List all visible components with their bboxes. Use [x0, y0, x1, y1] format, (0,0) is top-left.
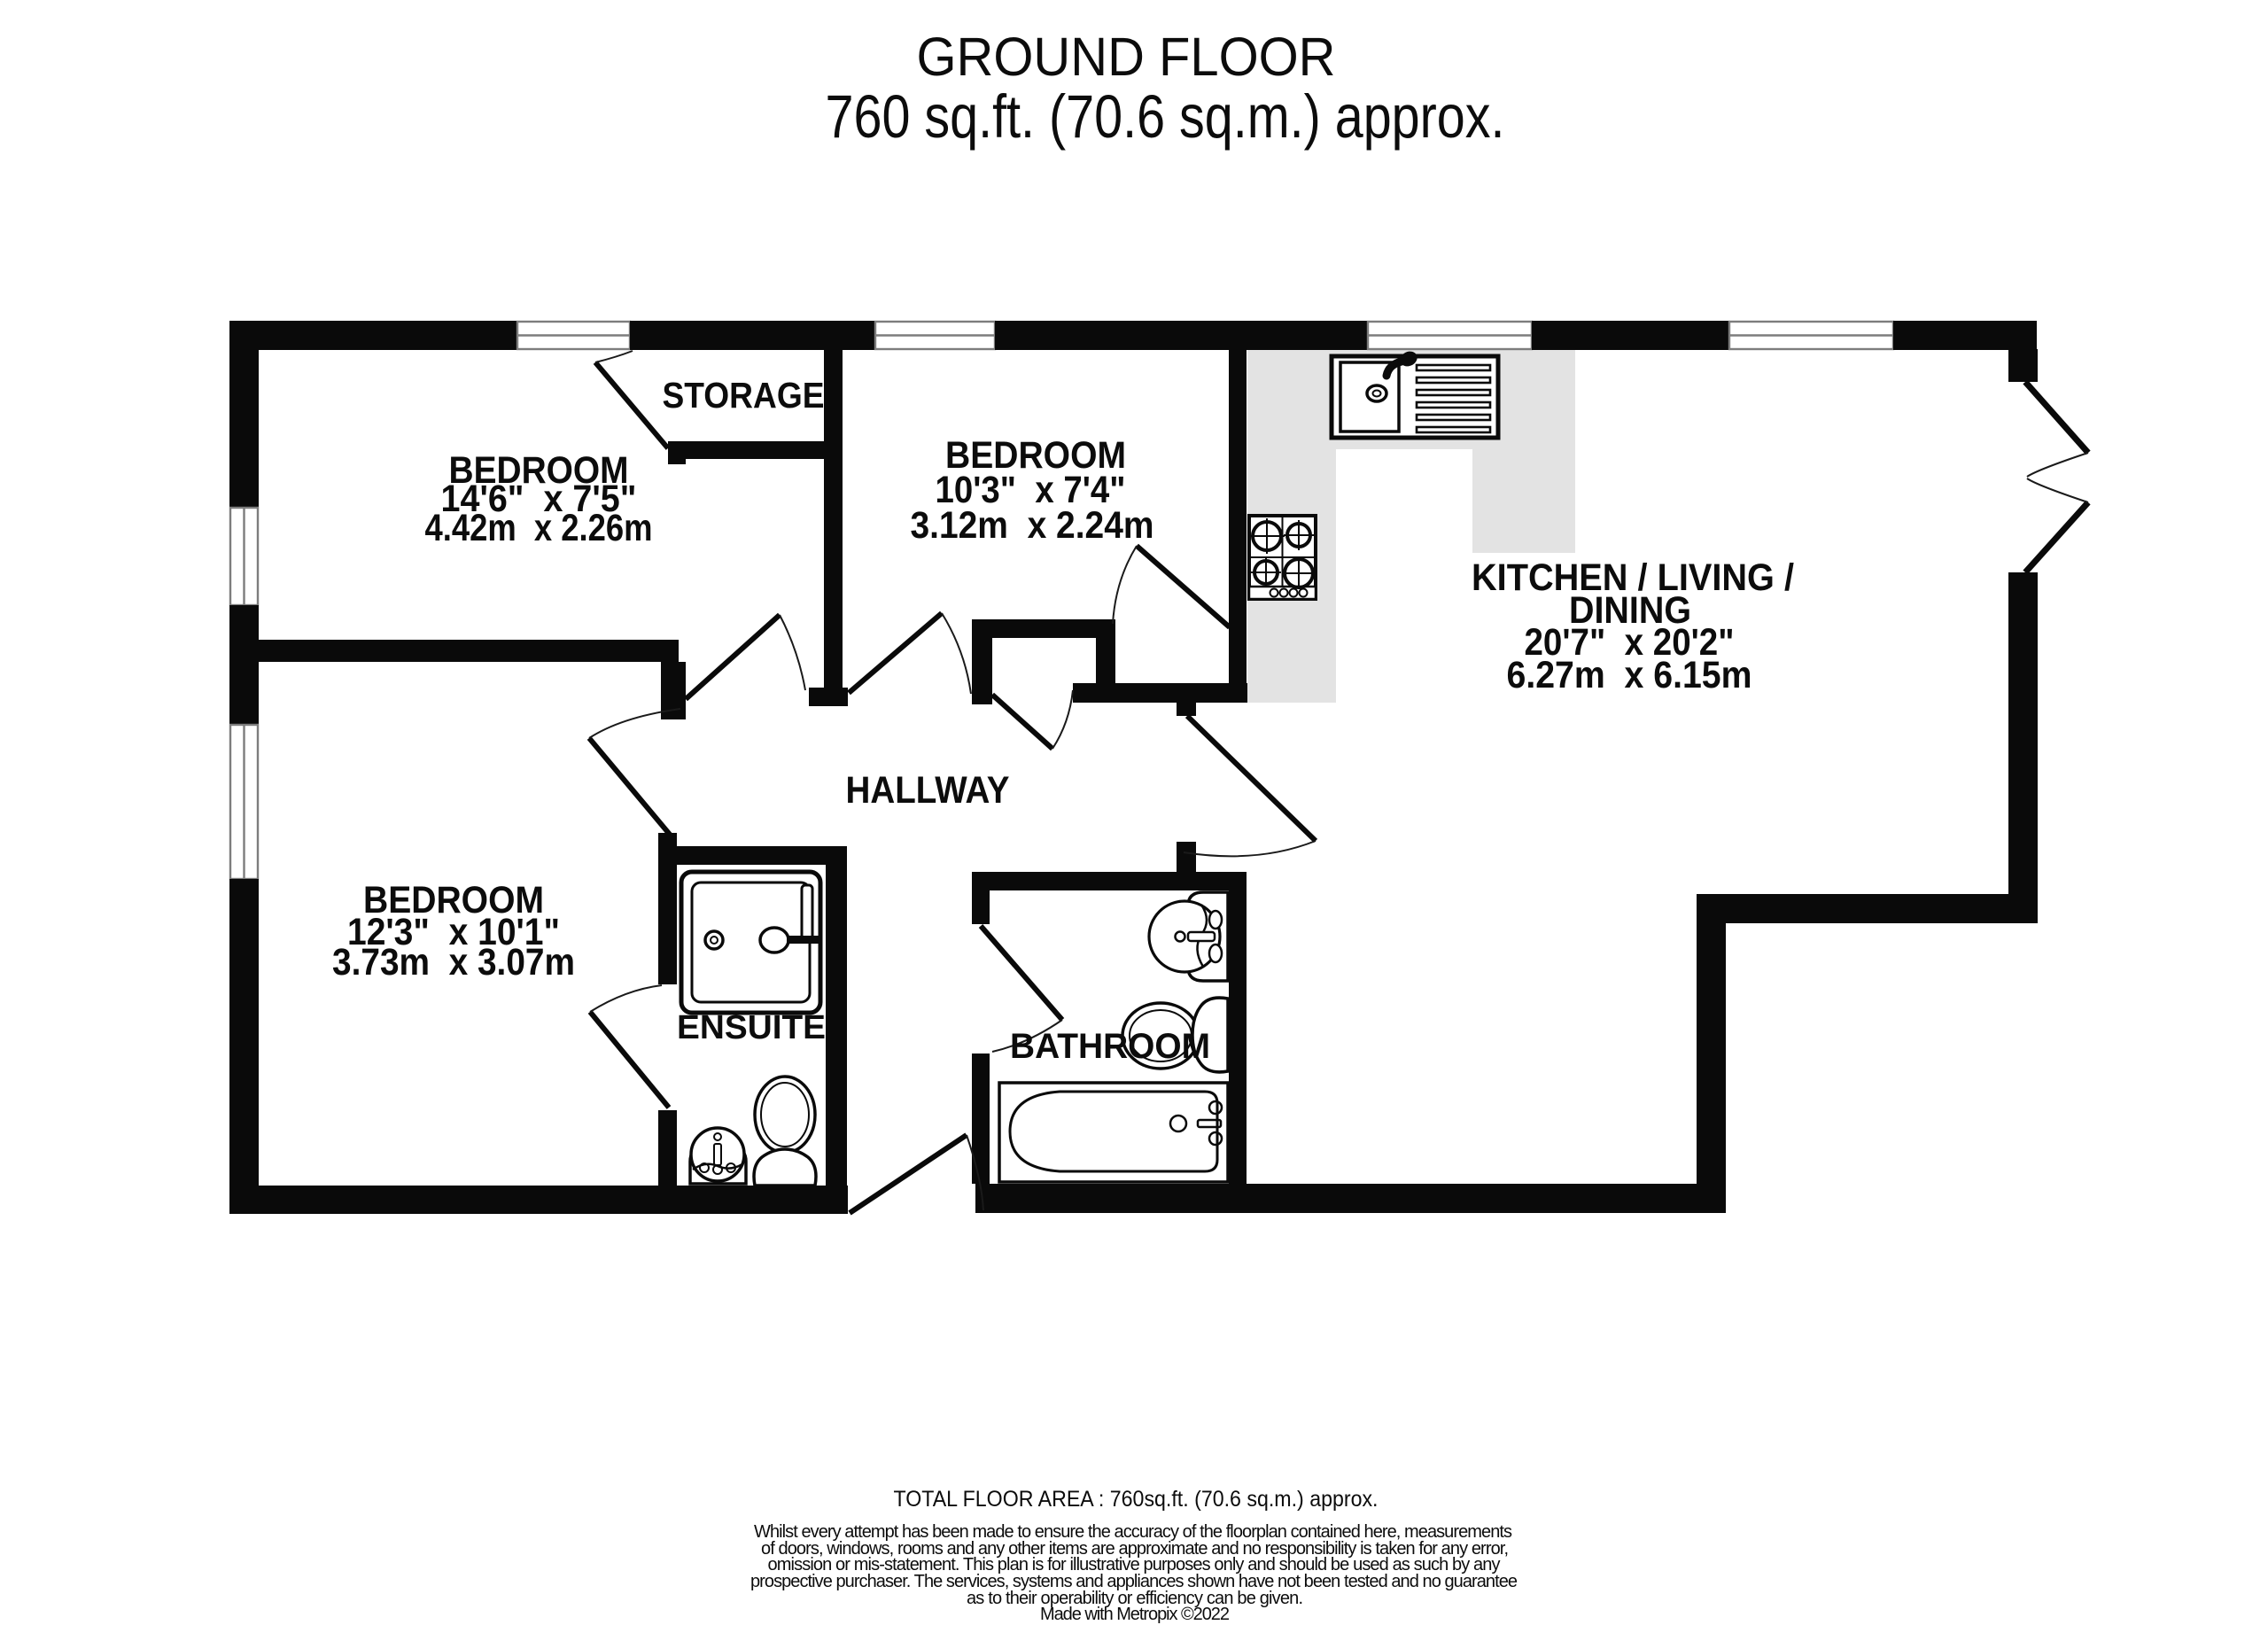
svg-text:4.42m x 2.26m: 4.42m x 2.26m	[425, 507, 653, 549]
svg-text:3.73m x 3.07m: 3.73m x 3.07m	[332, 941, 575, 984]
svg-text:ENSUITE: ENSUITE	[677, 1009, 826, 1046]
svg-text:HALLWAY: HALLWAY	[846, 769, 1010, 812]
svg-text:STORAGE: STORAGE	[663, 375, 825, 416]
svg-text:760 sq.ft. (70.6 sq.m.) approx: 760 sq.ft. (70.6 sq.m.) approx.	[826, 82, 1505, 151]
svg-text:TOTAL FLOOR AREA : 760sq.ft. (: TOTAL FLOOR AREA : 760sq.ft. (70.6 sq.m.…	[894, 1487, 1379, 1512]
svg-text:6.27m x 6.15m: 6.27m x 6.15m	[1507, 654, 1752, 696]
svg-text:GROUND FLOOR: GROUND FLOOR	[917, 27, 1336, 87]
svg-text:3.12m x 2.24m: 3.12m x 2.24m	[911, 504, 1154, 547]
svg-text:BATHROOM: BATHROOM	[1010, 1027, 1210, 1066]
svg-text:Made with Metropix ©2022: Made with Metropix ©2022	[1040, 1605, 1230, 1624]
